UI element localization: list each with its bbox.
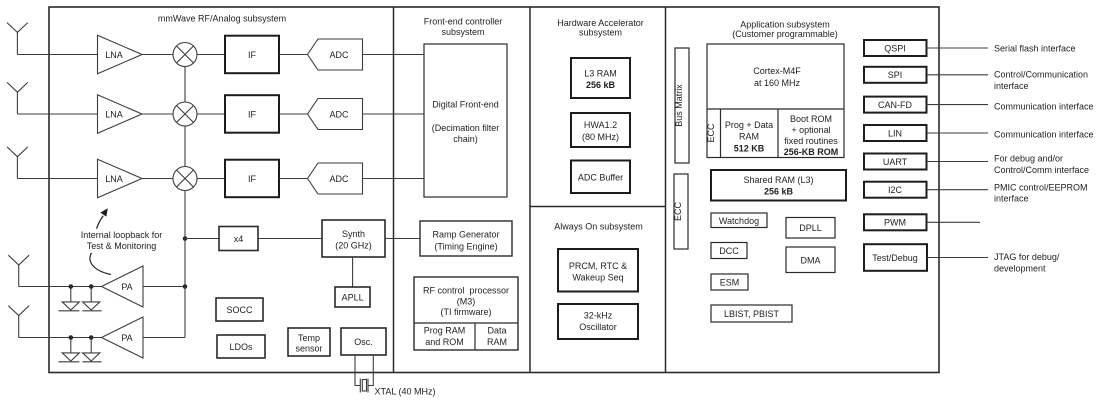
svg-text:(TI firmware): (TI firmware) xyxy=(441,307,492,317)
svg-text:Shared RAM (L3): Shared RAM (L3) xyxy=(743,175,813,185)
svg-text:512 KB: 512 KB xyxy=(734,143,765,153)
svg-text:Data: Data xyxy=(487,325,506,335)
svg-text:ADC: ADC xyxy=(329,109,349,119)
svg-text:DPLL: DPLL xyxy=(799,223,822,233)
svg-text:CAN-FD: CAN-FD xyxy=(878,100,912,110)
svg-text:Wakeup Seq: Wakeup Seq xyxy=(572,272,623,282)
svg-text:Temp: Temp xyxy=(298,333,320,343)
svg-text:and ROM: and ROM xyxy=(425,337,464,347)
svg-text:Control/Comm interface: Control/Comm interface xyxy=(994,165,1089,175)
svg-text:(20 GHz): (20 GHz) xyxy=(335,240,372,250)
svg-text:PWM: PWM xyxy=(884,218,906,228)
svg-text:Control/Communication: Control/Communication xyxy=(994,69,1088,79)
svg-text:Prog + Data: Prog + Data xyxy=(725,120,773,130)
svg-text:chain): chain) xyxy=(453,134,478,144)
svg-text:Osc.: Osc. xyxy=(354,337,373,347)
svg-text:IF: IF xyxy=(248,50,257,60)
svg-text:mmWave RF/Analog subsystem: mmWave RF/Analog subsystem xyxy=(158,13,286,23)
svg-text:RAM: RAM xyxy=(487,337,507,347)
svg-text:fixed routines: fixed routines xyxy=(784,136,838,146)
svg-text:DCC: DCC xyxy=(719,246,739,256)
svg-text:(Customer programmable): (Customer programmable) xyxy=(732,29,838,39)
svg-text:XTAL (40 MHz): XTAL (40 MHz) xyxy=(375,386,436,396)
svg-text:Synth: Synth xyxy=(342,229,365,239)
svg-text:ADC: ADC xyxy=(329,174,349,184)
svg-text:Ramp Generator: Ramp Generator xyxy=(432,229,499,239)
svg-text:SPI: SPI xyxy=(888,70,903,80)
svg-text:IF: IF xyxy=(248,109,257,119)
svg-text:PRCM, RTC &: PRCM, RTC & xyxy=(569,261,627,271)
svg-text:HWA1.2: HWA1.2 xyxy=(584,120,617,130)
svg-text:LBIST, PBIST: LBIST, PBIST xyxy=(724,309,780,319)
svg-text:ESM: ESM xyxy=(720,277,740,287)
svg-text:ECC: ECC xyxy=(673,202,683,222)
svg-text:(80 MHz): (80 MHz) xyxy=(582,132,619,142)
svg-text:Always On subsystem: Always On subsystem xyxy=(554,221,643,231)
svg-text:L3 RAM: L3 RAM xyxy=(584,68,617,78)
svg-text:ECC: ECC xyxy=(706,123,716,143)
svg-text:Communication interface: Communication interface xyxy=(994,101,1094,111)
svg-text:Application subsystem: Application subsystem xyxy=(740,19,830,29)
svg-text:PA: PA xyxy=(121,333,132,343)
svg-text:sensor: sensor xyxy=(295,343,322,353)
svg-text:+ optional: + optional xyxy=(791,125,830,135)
svg-text:I2C: I2C xyxy=(888,185,903,195)
svg-text:(Timing Engine): (Timing Engine) xyxy=(434,241,497,251)
svg-text:LIN: LIN xyxy=(888,128,902,138)
svg-text:Bus Matrix: Bus Matrix xyxy=(674,84,684,127)
svg-text:LNA: LNA xyxy=(105,50,123,60)
svg-text:development: development xyxy=(994,263,1046,273)
svg-text:Boot ROM: Boot ROM xyxy=(790,114,832,124)
svg-text:Serial flash interface: Serial flash interface xyxy=(994,43,1076,53)
svg-text:x4: x4 xyxy=(234,234,244,244)
svg-text:JTAG for debug/: JTAG for debug/ xyxy=(994,252,1060,262)
svg-text:RAM: RAM xyxy=(739,131,759,141)
svg-text:PA: PA xyxy=(121,282,132,292)
svg-text:PMIC control/EEPROM: PMIC control/EEPROM xyxy=(994,182,1088,192)
svg-text:IF: IF xyxy=(248,174,257,184)
svg-text:UART: UART xyxy=(883,157,908,167)
svg-text:256 kB: 256 kB xyxy=(764,186,794,196)
svg-text:interface: interface xyxy=(994,194,1029,204)
svg-text:at 160 MHz: at 160 MHz xyxy=(754,78,801,88)
svg-text:interface: interface xyxy=(994,81,1029,91)
svg-text:Communication interface: Communication interface xyxy=(994,129,1094,139)
svg-text:Internal loopback for: Internal loopback for xyxy=(81,230,163,240)
svg-text:Test & Monitoring: Test & Monitoring xyxy=(87,241,157,251)
svg-text:(Decimation filter: (Decimation filter xyxy=(432,123,500,133)
svg-text:For debug and/or: For debug and/or xyxy=(994,153,1063,163)
svg-text:APLL: APLL xyxy=(342,292,364,302)
svg-text:ADC Buffer: ADC Buffer xyxy=(578,172,623,182)
svg-text:ADC: ADC xyxy=(329,50,349,60)
svg-text:Prog RAM: Prog RAM xyxy=(424,325,466,335)
svg-text:256-KB ROM: 256-KB ROM xyxy=(784,147,839,157)
svg-text:Front-end controller: Front-end controller xyxy=(424,16,503,26)
svg-text:LDOs: LDOs xyxy=(229,342,253,352)
svg-text:Watchdog: Watchdog xyxy=(719,216,759,226)
svg-text:Hardware Accelerator: Hardware Accelerator xyxy=(557,18,644,28)
svg-text:LNA: LNA xyxy=(105,174,123,184)
svg-text:Digital Front-end: Digital Front-end xyxy=(432,99,499,109)
svg-text:DMA: DMA xyxy=(801,255,821,265)
svg-text:32-kHz: 32-kHz xyxy=(584,310,613,320)
svg-text:256 kB: 256 kB xyxy=(586,80,616,90)
svg-text:Test/Debug: Test/Debug xyxy=(872,253,918,263)
svg-text:subsystem: subsystem xyxy=(579,27,622,37)
svg-text:QSPI: QSPI xyxy=(884,43,906,53)
svg-text:Cortex-M4F: Cortex-M4F xyxy=(753,66,801,76)
svg-text:SOCC: SOCC xyxy=(226,305,253,315)
svg-text:RF control processor: RF control processor xyxy=(423,285,509,295)
svg-text:LNA: LNA xyxy=(105,109,123,119)
svg-text:Oscillator: Oscillator xyxy=(579,322,617,332)
svg-text:(M3): (M3) xyxy=(457,296,476,306)
svg-text:subsystem: subsystem xyxy=(441,27,484,37)
